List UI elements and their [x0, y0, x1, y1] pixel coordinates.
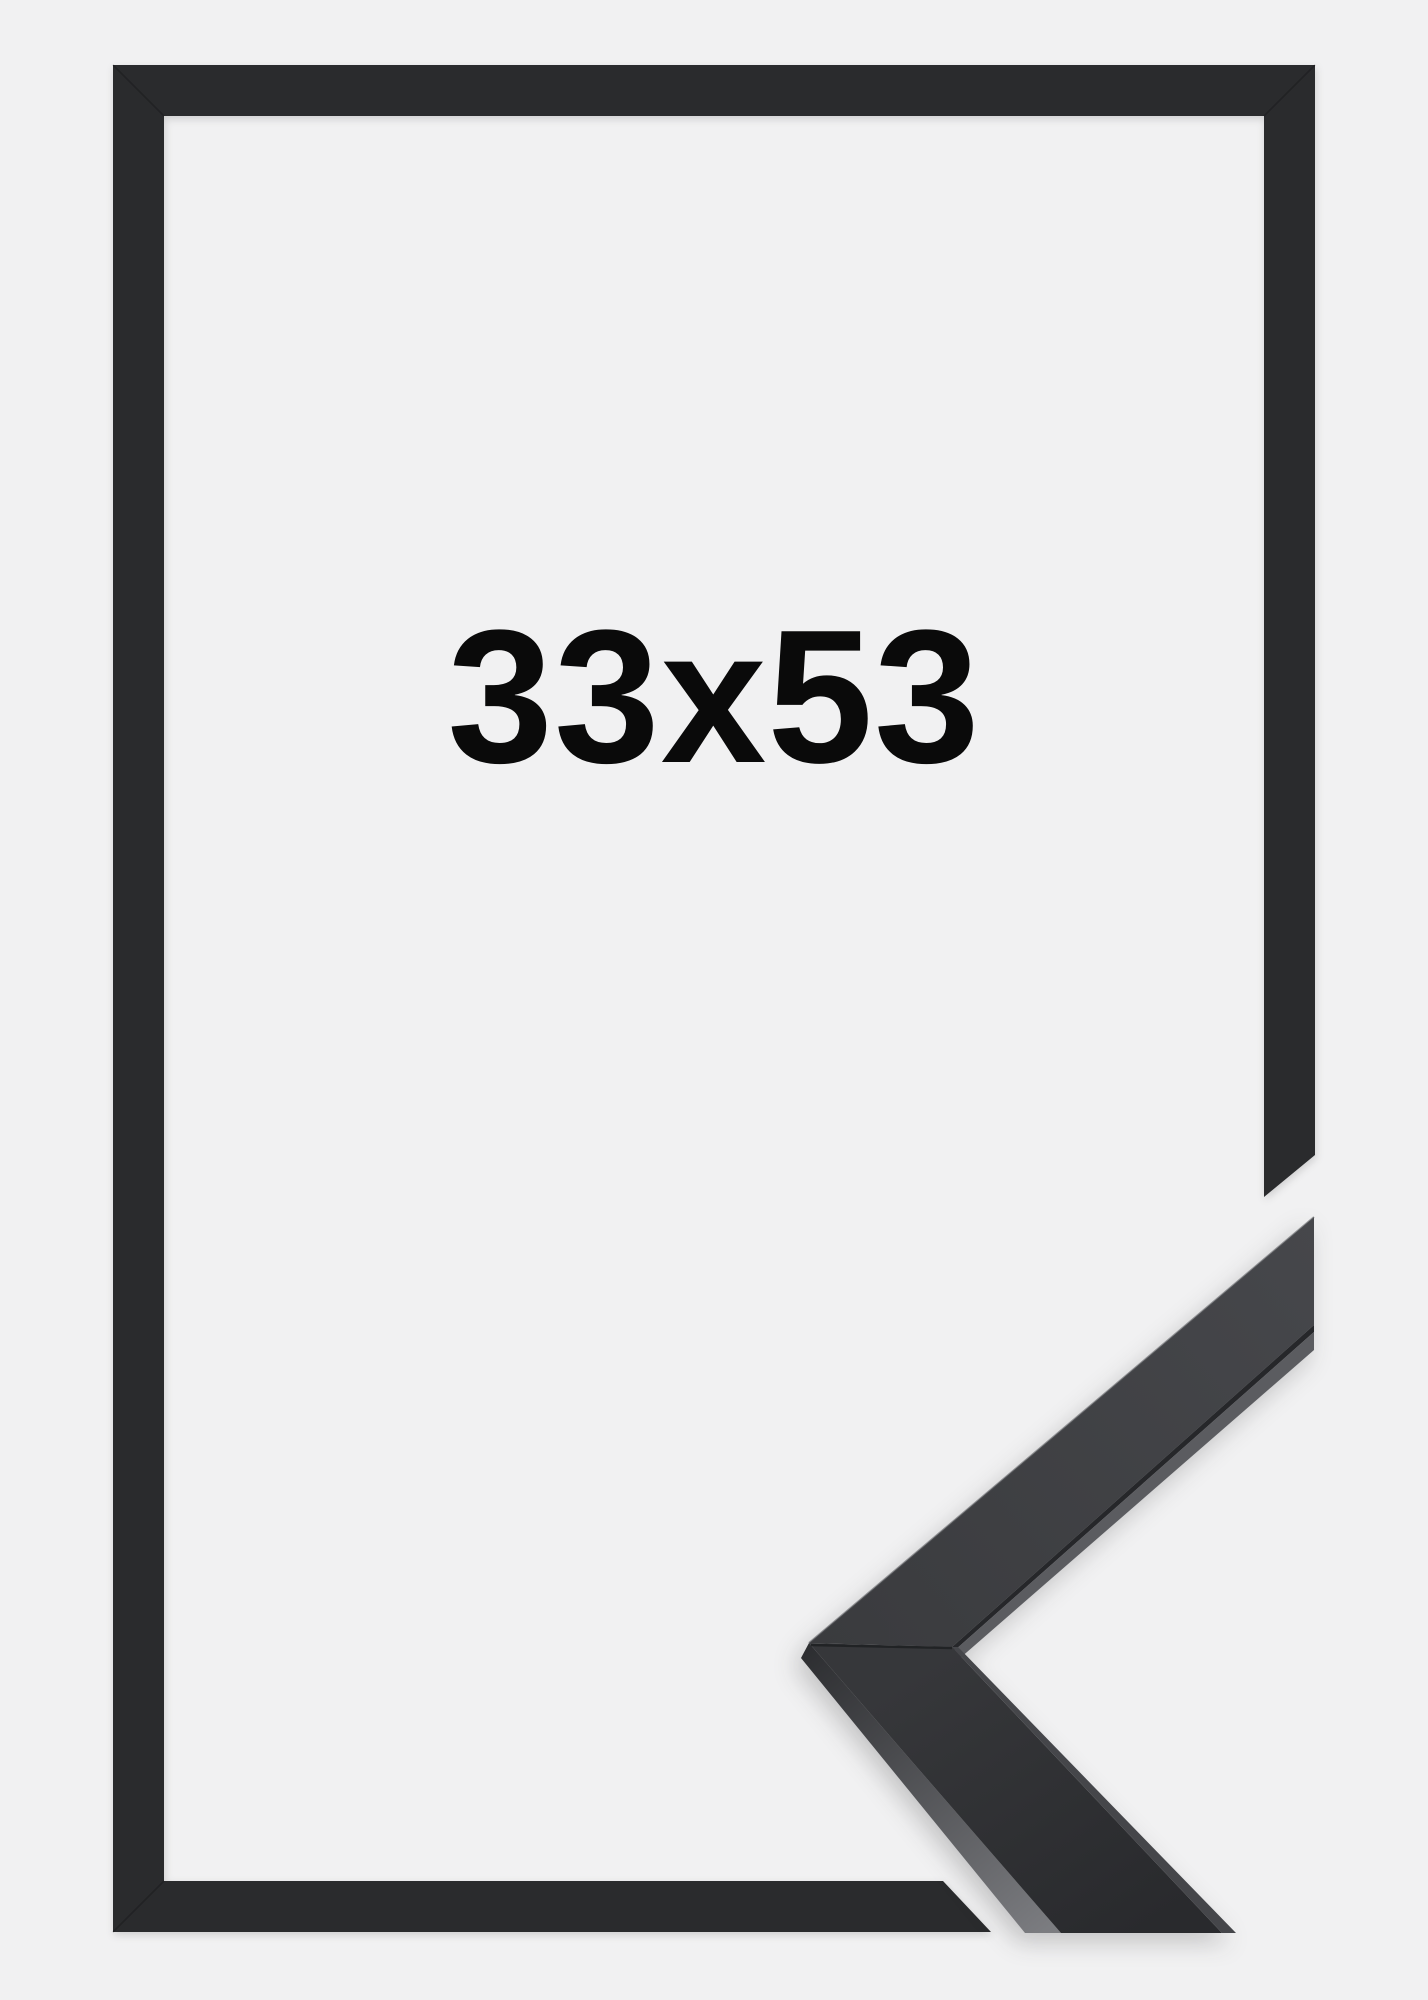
product-size-image: 33x53 [0, 0, 1428, 2000]
size-label: 33x53 [114, 602, 1314, 792]
frame-illustration [0, 0, 1428, 2000]
frame-miter-seams [113, 65, 1315, 1932]
corner-profile-sample [801, 1217, 1314, 1933]
sample-outer-edge-highlight [809, 1217, 1314, 1643]
picture-frame-border [113, 65, 1315, 1932]
